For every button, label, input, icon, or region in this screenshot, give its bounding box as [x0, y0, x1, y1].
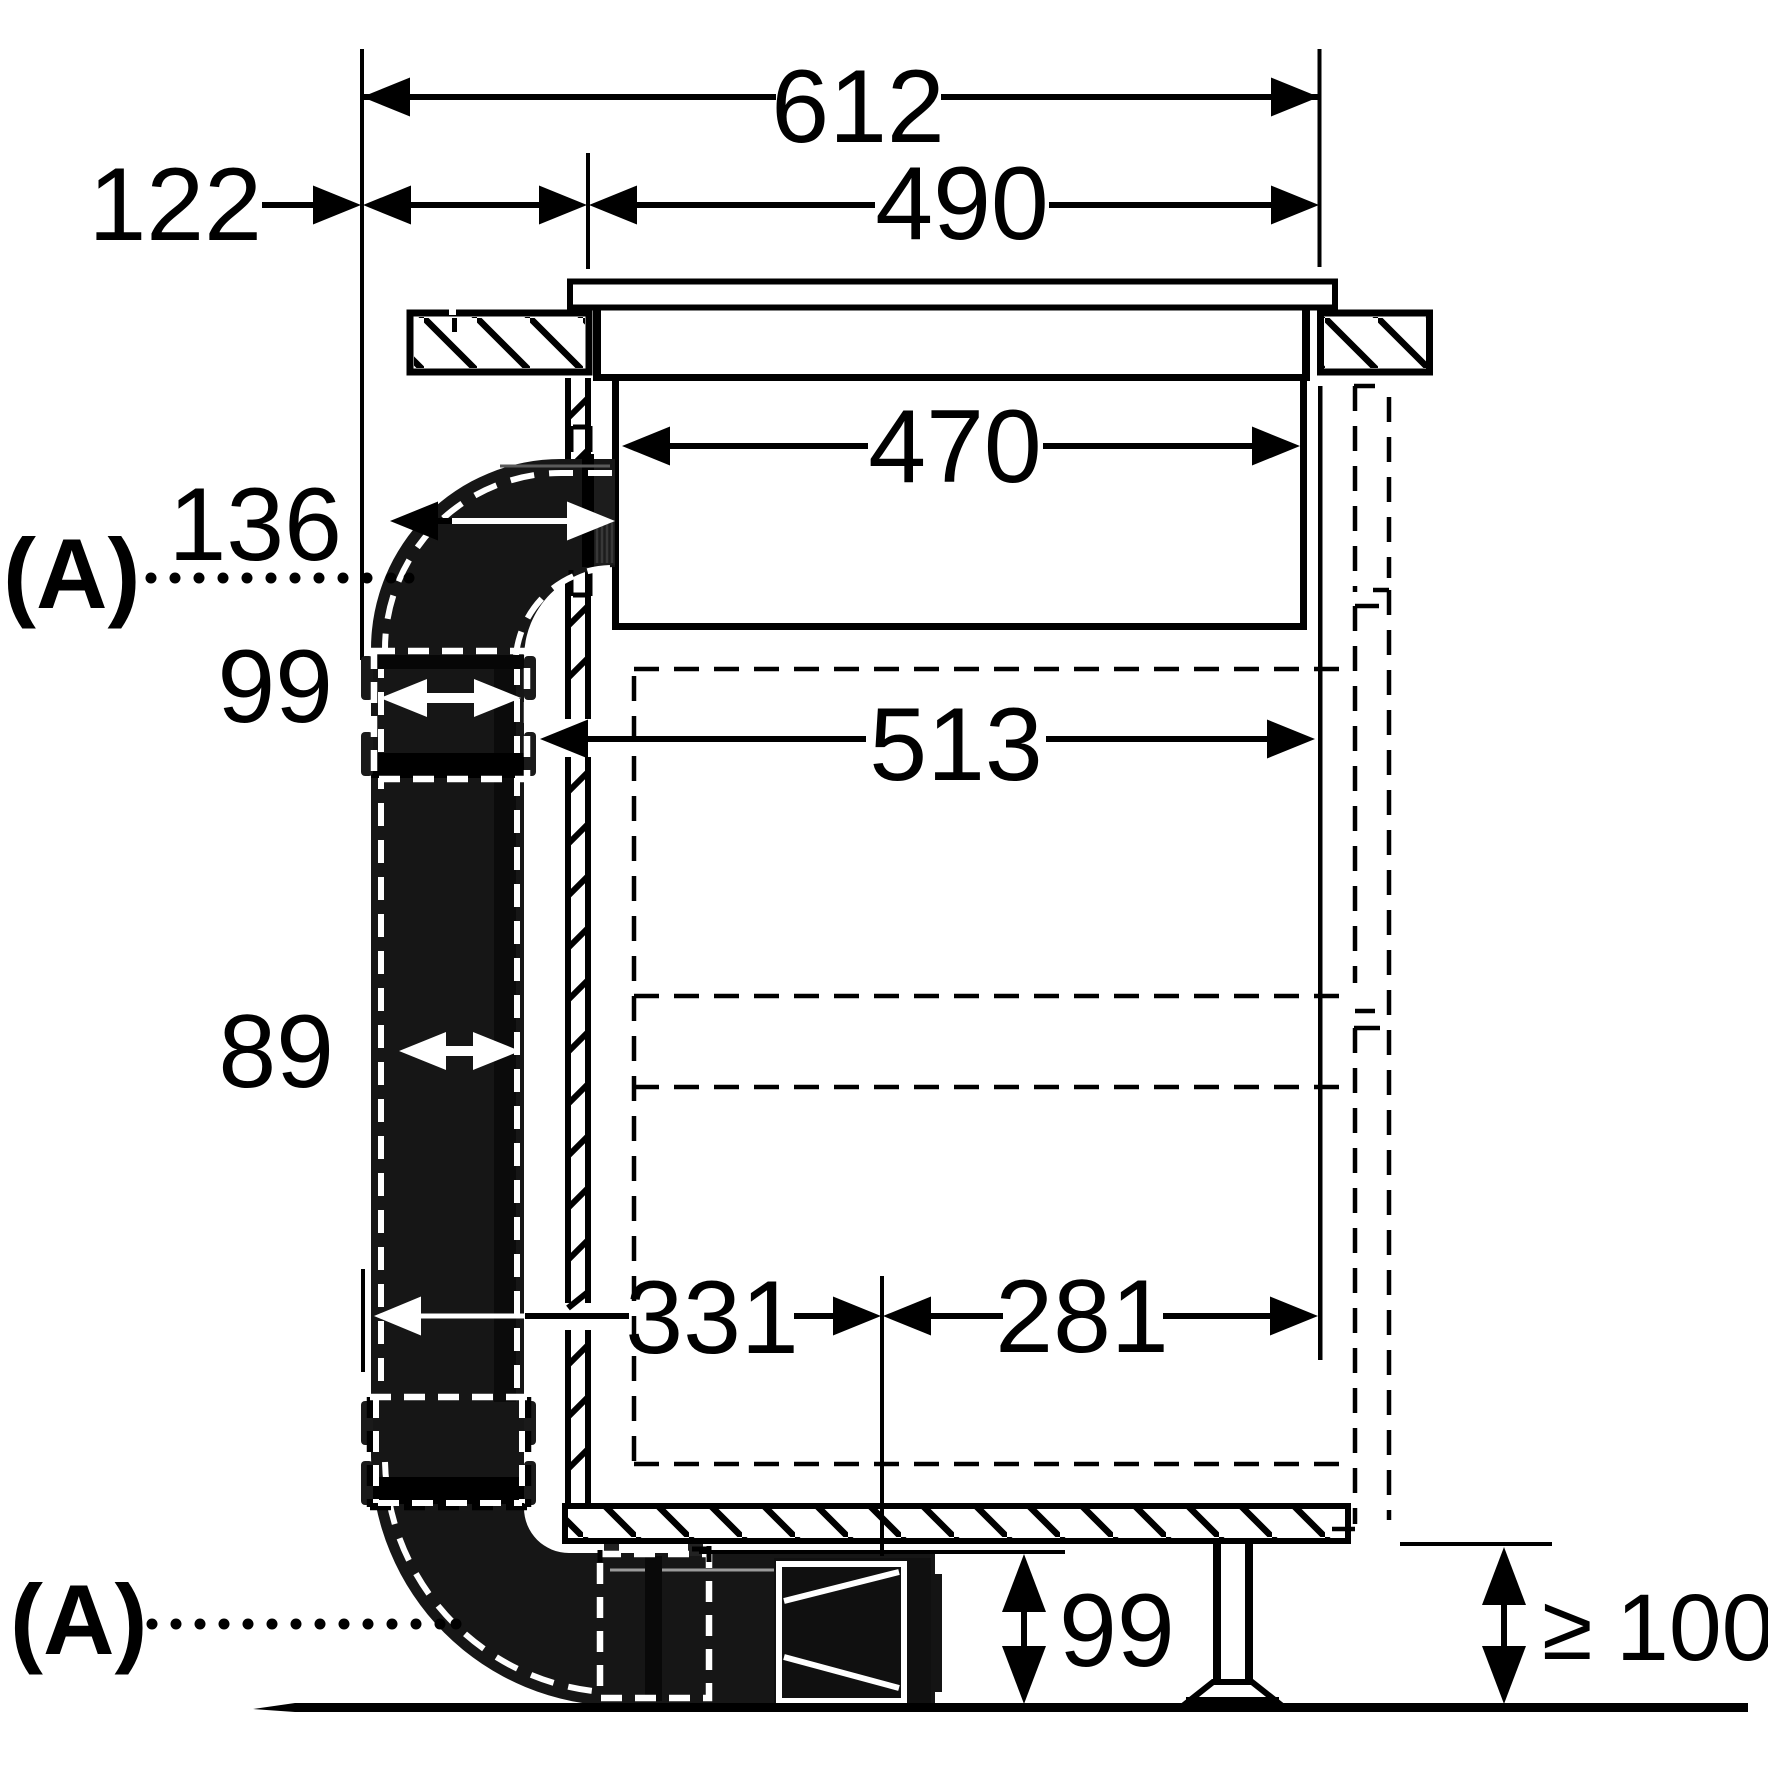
svg-text:≥: ≥	[1542, 1577, 1593, 1679]
svg-text:513: 513	[869, 687, 1043, 803]
svg-text:89: 89	[218, 994, 334, 1110]
svg-text:490: 490	[875, 146, 1049, 262]
svg-text:122: 122	[88, 147, 262, 263]
svg-text:100: 100	[1616, 1575, 1768, 1681]
svg-text:(A): (A)	[10, 1564, 147, 1675]
svg-text:136: 136	[168, 467, 342, 583]
svg-text:(A): (A)	[3, 518, 140, 629]
svg-text:99: 99	[1059, 1573, 1175, 1689]
svg-text:331: 331	[625, 1260, 799, 1376]
svg-text:281: 281	[995, 1259, 1169, 1375]
svg-text:99: 99	[217, 629, 333, 745]
svg-text:470: 470	[868, 389, 1042, 505]
